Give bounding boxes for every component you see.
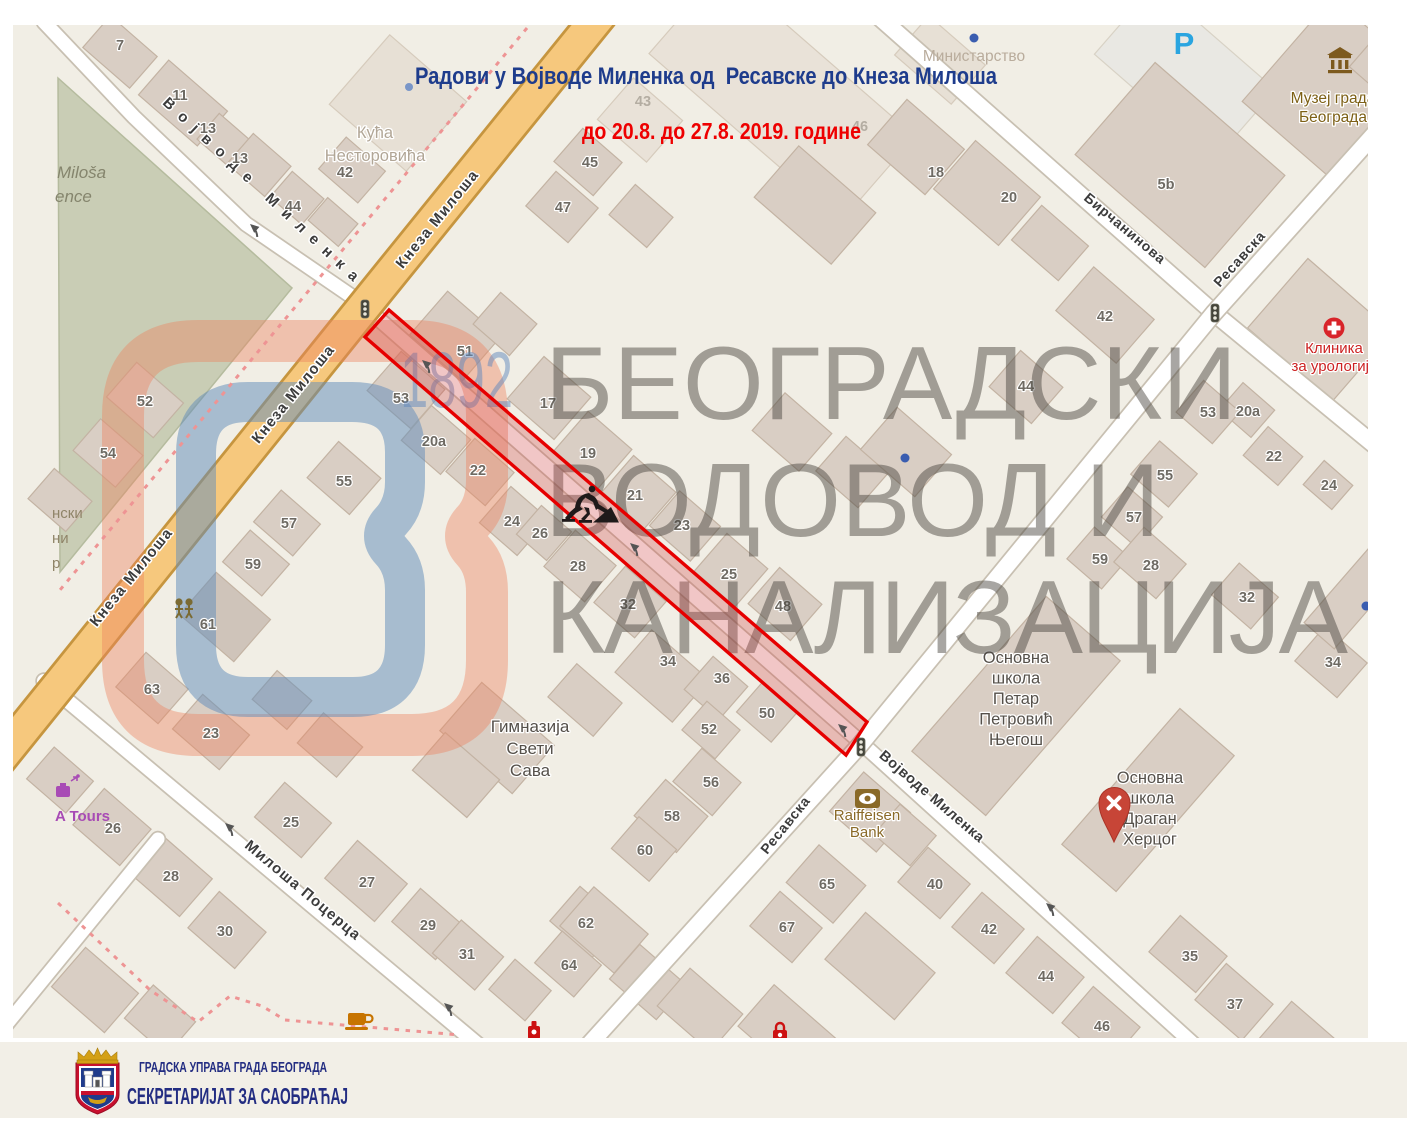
- svg-text:28: 28: [163, 869, 179, 885]
- svg-text:35: 35: [1182, 949, 1198, 965]
- svg-text:20a: 20a: [422, 434, 447, 450]
- svg-text:46: 46: [1094, 1019, 1110, 1035]
- svg-text:45: 45: [582, 155, 598, 171]
- svg-text:37: 37: [1227, 997, 1243, 1013]
- svg-text:42: 42: [981, 922, 997, 938]
- svg-text:23: 23: [203, 726, 219, 742]
- svg-text:31: 31: [459, 947, 475, 963]
- svg-text:59: 59: [245, 557, 261, 573]
- svg-text:58: 58: [664, 809, 680, 825]
- svg-text:42: 42: [337, 165, 353, 181]
- svg-text:54: 54: [100, 446, 116, 462]
- svg-text:24: 24: [1321, 478, 1337, 494]
- svg-text:52: 52: [701, 722, 717, 738]
- svg-text:СЕКРЕТАРИЈАТ ЗА САОБРАЋАЈ: СЕКРЕТАРИЈАТ ЗА САОБРАЋАЈ: [127, 1083, 348, 1109]
- svg-text:40: 40: [927, 877, 943, 893]
- svg-text:44: 44: [1038, 969, 1054, 985]
- svg-text:A Tours: A Tours: [55, 808, 110, 825]
- svg-text:43: 43: [635, 94, 651, 110]
- svg-text:до 20.8. до 27.8. 2019. године: до 20.8. до 27.8. 2019. године: [582, 118, 861, 144]
- svg-text:25: 25: [283, 815, 299, 831]
- svg-text:67: 67: [779, 920, 795, 936]
- svg-text:65: 65: [819, 877, 835, 893]
- svg-text:22: 22: [470, 463, 486, 479]
- svg-text:56: 56: [703, 775, 719, 791]
- svg-text:64: 64: [561, 958, 577, 974]
- svg-text:63: 63: [144, 682, 160, 698]
- svg-text:27: 27: [359, 875, 375, 891]
- svg-text:P: P: [1174, 26, 1195, 61]
- svg-text:20: 20: [1001, 190, 1017, 206]
- svg-text:30: 30: [217, 924, 233, 940]
- svg-text:60: 60: [637, 843, 653, 859]
- svg-text:50: 50: [759, 706, 775, 722]
- svg-text:44: 44: [285, 199, 301, 215]
- svg-text:29: 29: [420, 918, 436, 934]
- svg-text:20a: 20a: [1236, 404, 1261, 420]
- svg-text:55: 55: [336, 474, 352, 490]
- svg-text:42: 42: [1097, 309, 1113, 325]
- svg-text:57: 57: [281, 516, 297, 532]
- svg-text:13: 13: [232, 151, 248, 167]
- svg-text:62: 62: [578, 916, 594, 932]
- svg-text:61: 61: [200, 617, 216, 633]
- svg-text:47: 47: [555, 200, 571, 216]
- svg-text:52: 52: [137, 394, 153, 410]
- svg-text:24: 24: [504, 514, 520, 530]
- svg-text:22: 22: [1266, 449, 1282, 465]
- svg-text:Радови у Војводе Миленка од Р: Радови у Војводе Миленка од Ресавске до …: [415, 63, 997, 90]
- svg-text:ГРАДСКА УПРАВА ГРАДА БЕОГРАДА: ГРАДСКА УПРАВА ГРАДА БЕОГРАДА: [139, 1059, 327, 1076]
- svg-text:13: 13: [200, 121, 216, 137]
- svg-text:5b: 5b: [1158, 177, 1175, 193]
- svg-text:БЕОГРАДСКИ: БЕОГРАДСКИ: [545, 326, 1237, 442]
- svg-text:11: 11: [172, 88, 187, 104]
- svg-text:7: 7: [116, 38, 124, 54]
- svg-text:18: 18: [928, 165, 944, 181]
